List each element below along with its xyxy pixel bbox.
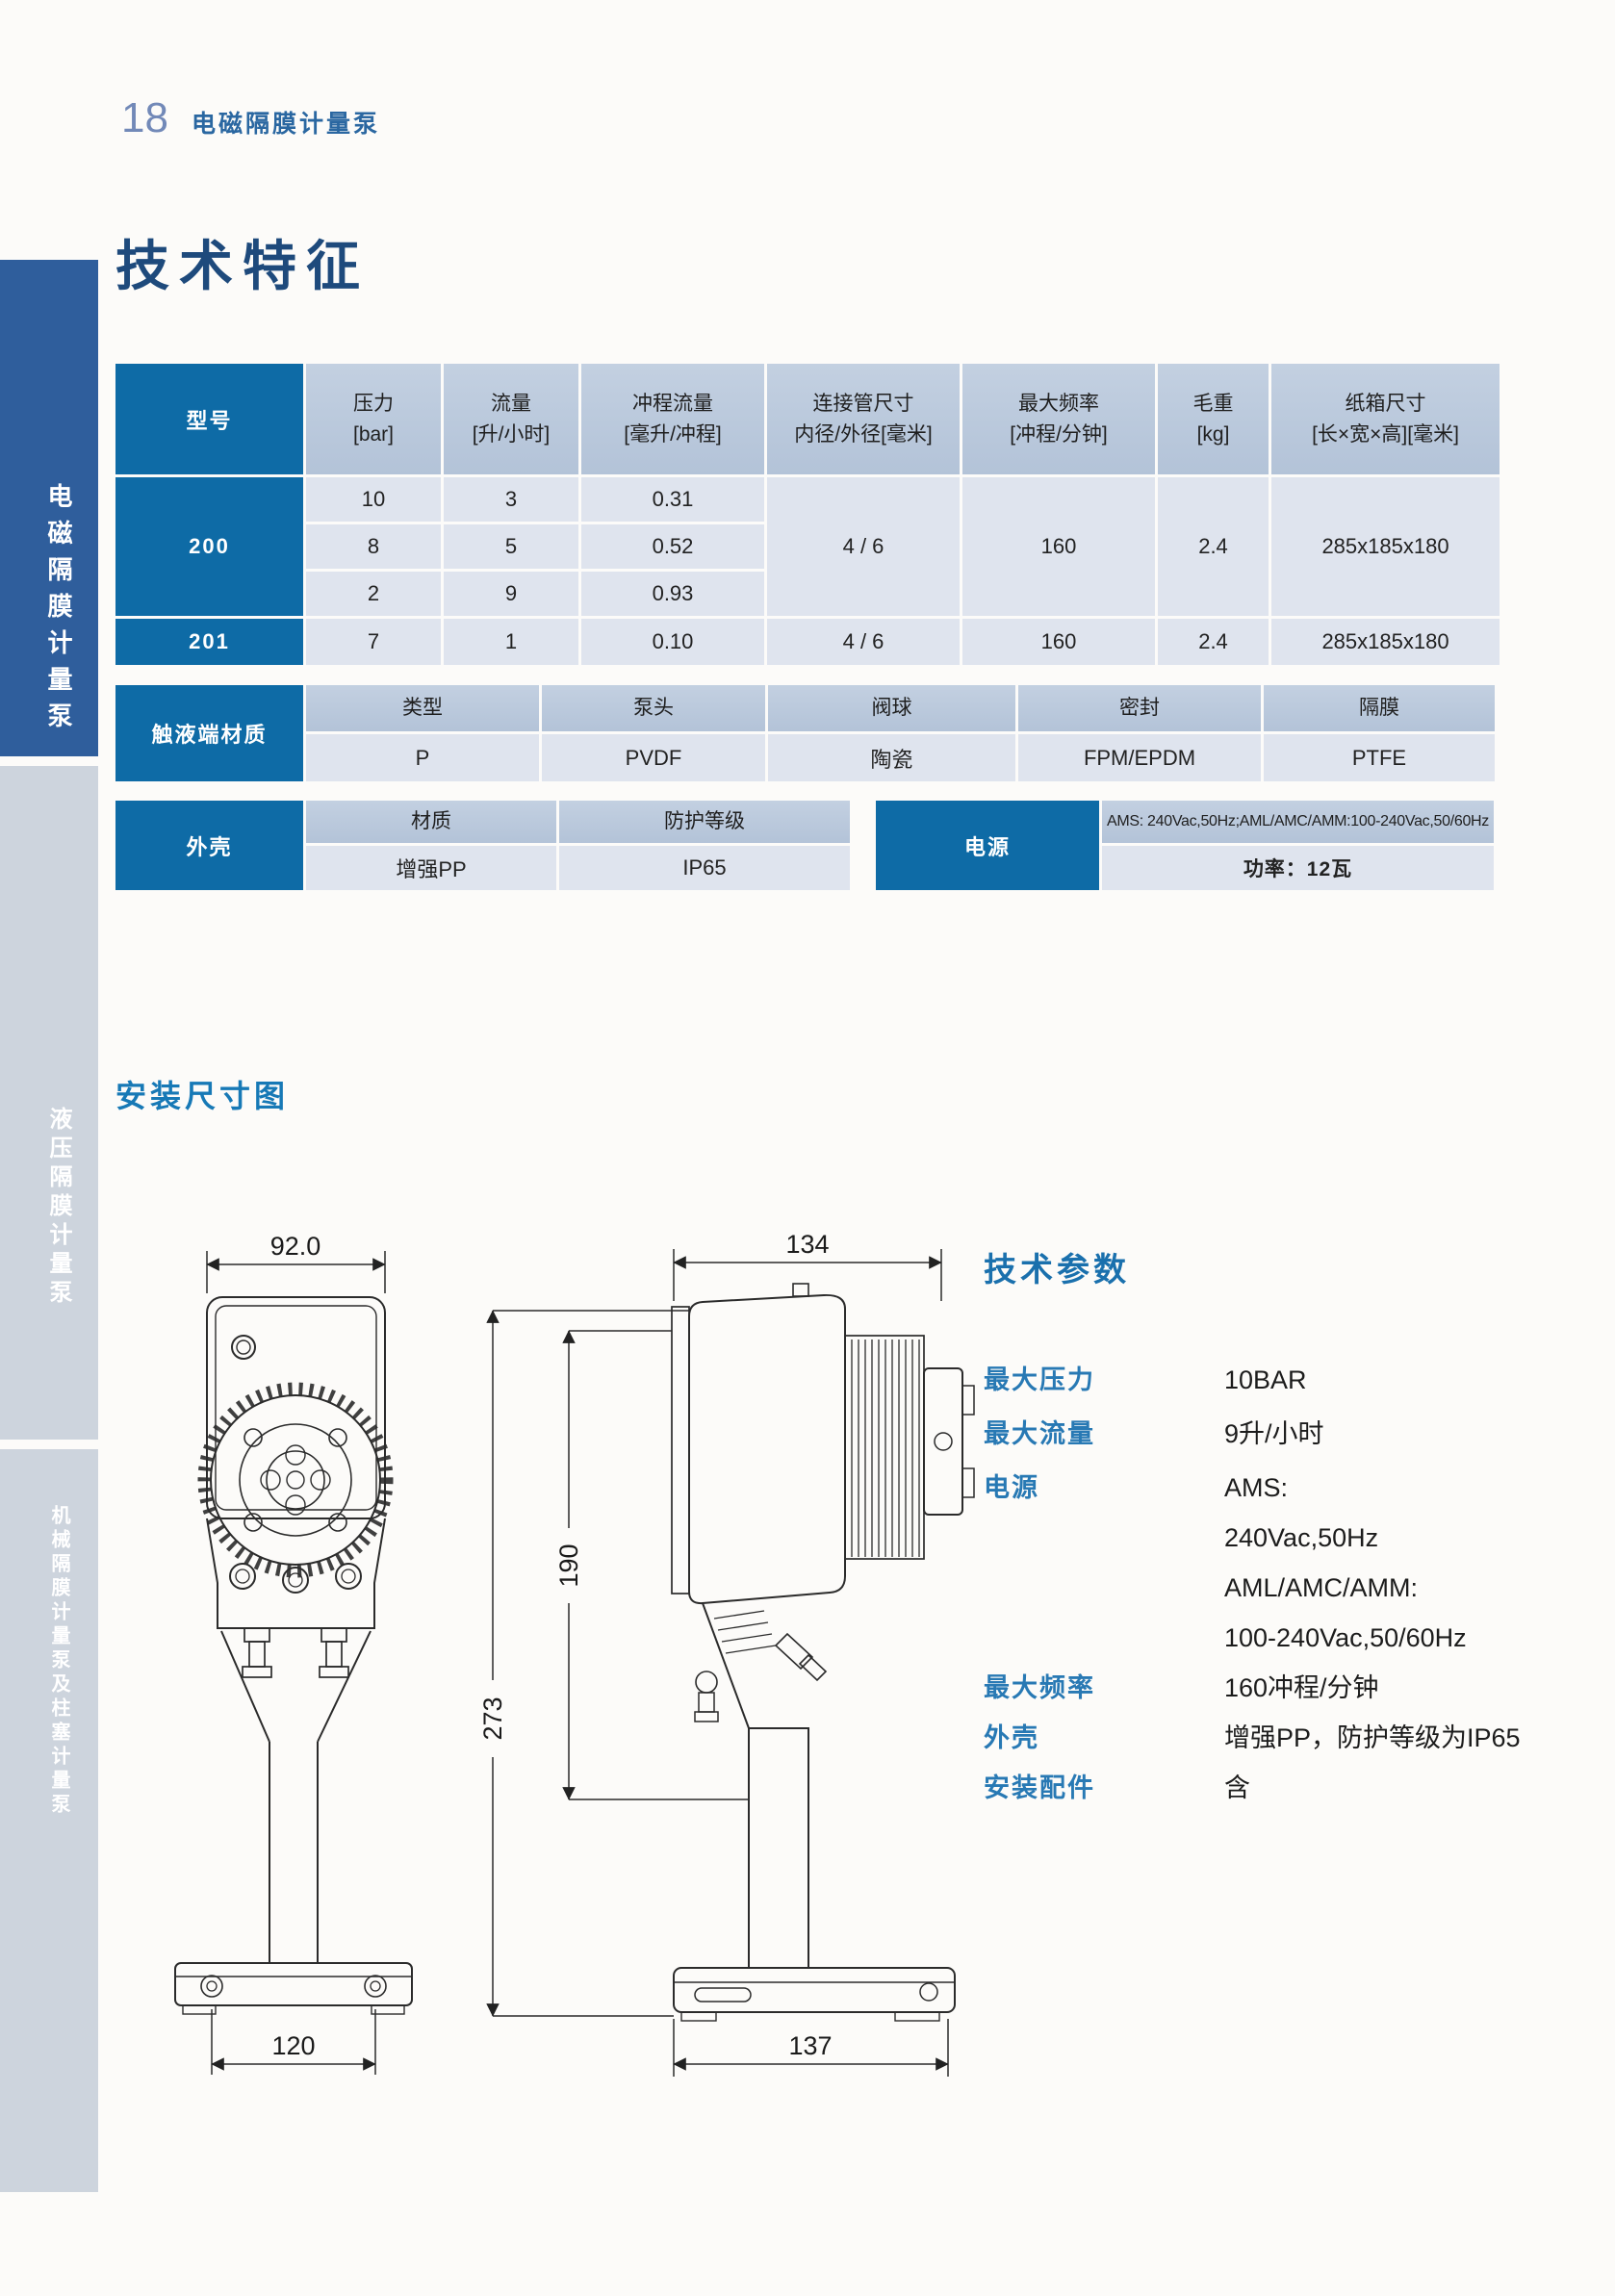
spec-header-max-frequency: 最大频率 [冲程/分钟] <box>962 364 1155 474</box>
header-line2: [bar] <box>353 420 394 450</box>
param-label: 最大压力 <box>984 1355 1224 1405</box>
header-line1: 纸箱尺寸 <box>1346 389 1426 420</box>
materials-value-pump-head: PVDF <box>542 734 765 781</box>
param-label: 电源 <box>984 1463 1224 1513</box>
materials-value-type: P <box>306 734 539 781</box>
power-line: 240Vac,50Hz <box>1224 1513 1467 1563</box>
installation-dimension-drawing: 92.0 120 134 190 273 137 <box>125 1193 991 2117</box>
spec-cell-carton: 285x185x180 <box>1271 477 1500 616</box>
page-number: 18 <box>121 94 168 142</box>
spec-cell-frequency: 160 <box>962 619 1155 665</box>
param-label: 外壳 <box>984 1713 1224 1763</box>
spec-cell-stroke: 0.31 <box>581 477 764 522</box>
spec-model-200: 200 <box>115 477 303 616</box>
spec-cell-stroke: 0.93 <box>581 572 764 616</box>
motor-fins <box>852 1339 919 1557</box>
vent-grille <box>714 1611 776 1653</box>
header-line1: 连接管尺寸 <box>813 389 914 420</box>
spec-header-carton-size: 纸箱尺寸 [长×宽×高][毫米] <box>1271 364 1500 474</box>
materials-value-valve-ball: 陶瓷 <box>768 734 1015 781</box>
page-header: 18 电磁隔膜计量泵 <box>121 94 380 142</box>
param-value: 10BAR <box>1224 1355 1307 1405</box>
spec-cell-flow: 1 <box>444 619 578 665</box>
tech-param-row-accessories: 安装配件 含 <box>984 1763 1523 1813</box>
spec-cell-pressure: 10 <box>306 477 441 522</box>
header-line1: 压力 <box>353 389 394 420</box>
tech-params-list: 最大压力 10BAR 最大流量 9升/小时 电源 AMS: 240Vac,50H… <box>984 1355 1523 1813</box>
power-line: 100-240Vac,50/60Hz <box>1224 1613 1467 1663</box>
spec-header-pressure: 压力 [bar] <box>306 364 441 474</box>
materials-table: 触液端材质 类型 泵头 阀球 密封 隔膜 P PVDF 陶瓷 FPM/EPDM … <box>115 685 1495 781</box>
header-line2: [长×宽×高][毫米] <box>1312 420 1459 450</box>
spec-cell-flow: 9 <box>444 572 578 616</box>
spec-model-201: 201 <box>115 619 303 665</box>
spec-cell-flow: 5 <box>444 524 578 569</box>
dimension-side-total-height <box>493 1311 689 2016</box>
header-line1: 流量 <box>491 389 531 420</box>
dim-label-front-base: 120 <box>271 2031 315 2060</box>
tech-param-row-power: 电源 AMS: 240Vac,50Hz AML/AMC/AMM: 100-240… <box>984 1463 1523 1663</box>
page-title: 技术特征 <box>115 223 370 301</box>
spec-cell-weight: 2.4 <box>1158 619 1269 665</box>
param-label: 最大频率 <box>984 1663 1224 1713</box>
tech-param-row-max-flow: 最大流量 9升/小时 <box>984 1409 1523 1463</box>
sidebar-tab-label: 机械隔膜计量泵及柱塞计量泵 <box>45 1505 73 1818</box>
sidebar-tab-label: 液压隔膜计量泵 <box>41 1107 75 1309</box>
housing-header-material: 材质 <box>306 801 556 843</box>
sidebar-tab-mechanical-diaphragm-plunger-pump: 机械隔膜计量泵及柱塞计量泵 <box>0 1449 98 2192</box>
header-line1: 最大频率 <box>1018 389 1099 420</box>
housing-label: 外壳 <box>115 801 303 890</box>
header-line2: [升/小时] <box>473 420 551 450</box>
materials-header-seal: 密封 <box>1018 685 1261 731</box>
materials-header-pump-head: 泵头 <box>542 685 765 731</box>
sidebar-tab-solenoid-diaphragm-pump: 电磁隔膜计量泵 <box>0 260 98 756</box>
param-label: 安装配件 <box>984 1763 1224 1813</box>
param-value: 160冲程/分钟 <box>1224 1663 1379 1713</box>
spec-header-flow: 流量 [升/小时] <box>444 364 578 474</box>
housing-value-protection: IP65 <box>559 846 850 890</box>
param-value: 增强PP，防护等级为IP65 <box>1224 1713 1521 1763</box>
header-line2: [毫升/冲程] <box>624 420 722 450</box>
spec-cell-flow: 3 <box>444 477 578 522</box>
materials-header-valve-ball: 阀球 <box>768 685 1015 731</box>
dim-label-side-total-height: 273 <box>478 1696 507 1740</box>
materials-header-diaphragm: 隔膜 <box>1264 685 1495 731</box>
spec-table: 型号 压力 [bar] 流量 [升/小时] 冲程流量 [毫升/冲程] 连接管尺寸… <box>115 364 1500 665</box>
power-line: AML/AMC/AMM: <box>1224 1563 1467 1613</box>
installation-section-title: 安装尺寸图 <box>115 1072 289 1116</box>
spec-cell-weight: 2.4 <box>1158 477 1269 616</box>
catalog-page: 电磁隔膜计量泵 液压隔膜计量泵 机械隔膜计量泵及柱塞计量泵 18 电磁隔膜计量泵… <box>0 0 1615 2296</box>
dim-label-front-width: 92.0 <box>270 1232 321 1261</box>
dimension-side-mid-height <box>569 1331 749 1799</box>
tech-param-row-max-frequency: 最大频率 160冲程/分钟 <box>984 1663 1523 1713</box>
spec-cell-pressure: 8 <box>306 524 441 569</box>
param-value: 9升/小时 <box>1224 1409 1324 1459</box>
spec-header-model: 型号 <box>115 364 303 474</box>
tech-params-title: 技术参数 <box>984 1243 1130 1290</box>
spec-cell-stroke: 0.52 <box>581 524 764 569</box>
spec-cell-frequency: 160 <box>962 477 1155 616</box>
spec-header-stroke-flow: 冲程流量 [毫升/冲程] <box>581 364 764 474</box>
page-section-title: 电磁隔膜计量泵 <box>192 105 380 140</box>
header-line2: [冲程/分钟] <box>1010 420 1108 450</box>
tech-param-row-max-pressure: 最大压力 10BAR <box>984 1355 1523 1409</box>
dim-label-side-base: 137 <box>788 2031 832 2060</box>
spec-cell-pipe: 4 / 6 <box>767 477 960 616</box>
header-line1: 毛重 <box>1193 389 1234 420</box>
dim-label-side-top: 134 <box>785 1230 829 1259</box>
housing-table: 外壳 材质 防护等级 增强PP IP65 <box>115 801 850 890</box>
power-label: 电源 <box>876 801 1099 890</box>
sidebar-tab-hydraulic-diaphragm-pump: 液压隔膜计量泵 <box>0 766 98 1440</box>
materials-header-type: 类型 <box>306 685 539 731</box>
spec-cell-stroke: 0.10 <box>581 619 764 665</box>
materials-value-diaphragm: PTFE <box>1264 734 1495 781</box>
power-table: 电源 AMS: 240Vac,50Hz;AML/AMC/AMM:100-240V… <box>876 801 1494 890</box>
power-spec-value: AMS: 240Vac,50Hz;AML/AMC/AMM:100-240Vac,… <box>1102 801 1494 843</box>
housing-header-protection: 防护等级 <box>559 801 850 843</box>
power-line: AMS: <box>1224 1463 1467 1513</box>
spec-header-pipe-size: 连接管尺寸 内径/外径[毫米] <box>767 364 960 474</box>
housing-value-material: 增强PP <box>306 846 556 890</box>
spec-cell-pressure: 2 <box>306 572 441 616</box>
spec-cell-pipe: 4 / 6 <box>767 619 960 665</box>
param-value-multiline: AMS: 240Vac,50Hz AML/AMC/AMM: 100-240Vac… <box>1224 1463 1467 1663</box>
pump-front-view <box>175 1251 412 2075</box>
materials-value-seal: FPM/EPDM <box>1018 734 1261 781</box>
tech-param-row-housing: 外壳 增强PP，防护等级为IP65 <box>984 1713 1523 1763</box>
spec-cell-pressure: 7 <box>306 619 441 665</box>
header-line2: [kg] <box>1197 420 1230 450</box>
param-label: 最大流量 <box>984 1409 1224 1459</box>
materials-label: 触液端材质 <box>115 685 303 781</box>
header-line1: 型号 <box>186 404 232 435</box>
param-value: 含 <box>1224 1763 1250 1813</box>
front-pipe-fittings <box>243 1628 348 1677</box>
spec-header-gross-weight: 毛重 [kg] <box>1158 364 1269 474</box>
spec-cell-carton: 285x185x180 <box>1271 619 1500 665</box>
sidebar-tab-label: 电磁隔膜计量泵 <box>41 483 77 739</box>
dim-label-side-mid-height: 190 <box>554 1543 583 1587</box>
header-line1: 冲程流量 <box>632 389 713 420</box>
pump-side-view <box>493 1249 974 2077</box>
header-line2: 内径/外径[毫米] <box>794 420 933 450</box>
power-wattage-value: 功率：12瓦 <box>1102 846 1494 890</box>
